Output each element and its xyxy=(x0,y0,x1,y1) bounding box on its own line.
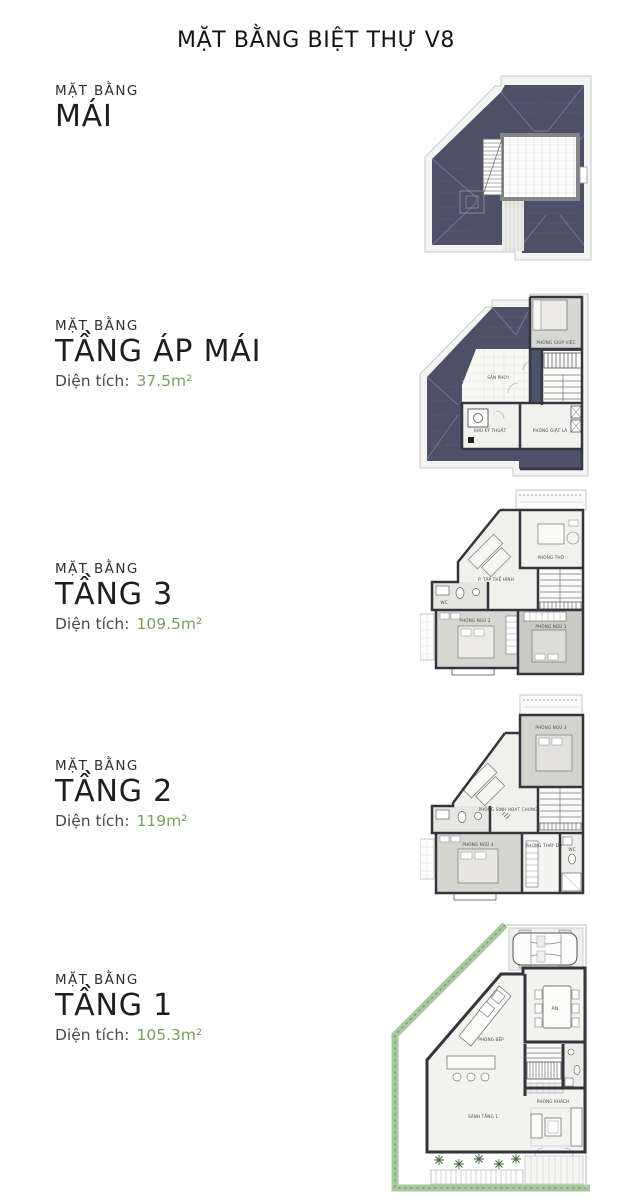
section-name: TẦNG 3 xyxy=(55,578,202,611)
balcony xyxy=(516,490,586,510)
section-name: TẦNG ÁP MÁI xyxy=(55,335,261,368)
section-roof: MẶT BẰNG MÁI xyxy=(55,83,139,133)
floor2-plan-drawing: PHÒNG NGỦ 3 PHÒNG SINH HOẠT CHUNG PHÒNG … xyxy=(420,691,632,901)
attic-plan-drawing: PHÒNG GIÚP VIỆC SÂN PHƠI KHU KỸ THUẬT PH… xyxy=(384,291,620,479)
room-label-hall: SẢNH TẦNG 1 xyxy=(468,1114,498,1119)
brochure-page: MẶT BẰNG BIỆT THỰ V8 MẶT BẰNG MÁI MẶT BẰ… xyxy=(0,0,632,1200)
room-label-wc: WC xyxy=(440,600,447,605)
room-label-bedroom4: PHÒNG NGỦ 4 xyxy=(462,842,493,847)
room-label-drying: SÂN PHƠI xyxy=(487,375,509,380)
room-label-kitchen: PHÒNG BẾP xyxy=(478,1036,504,1042)
room-label-bedroom1: PHÒNG NGỦ 1 xyxy=(535,624,566,629)
floor1-plan: ĂN PHÒNG BẾP SẢNH TẦNG 1 PHÒNG KHÁCH xyxy=(385,920,632,1198)
room-label-bedroom2: PHÒNG NGỦ 2 xyxy=(459,618,490,623)
section-label: MẶT BẰNG xyxy=(55,972,202,988)
section-area: Diện tích:119m² xyxy=(55,812,187,830)
room-label-maid: PHÒNG GIÚP VIỆC xyxy=(536,340,575,345)
plant-icons xyxy=(434,1154,521,1169)
roof-plan-drawing xyxy=(388,73,620,263)
section-name: MÁI xyxy=(55,100,139,133)
area-label: Diện tích: xyxy=(55,812,129,830)
section-area: Diện tích:109.5m² xyxy=(55,615,202,633)
section-label: MẶT BẰNG xyxy=(55,318,261,334)
roof-plan xyxy=(388,73,620,263)
room-label-dining: ĂN xyxy=(552,1005,559,1012)
section-area: Diện tích:37.5m² xyxy=(55,372,261,390)
room-label-common: PHÒNG SINH HOẠT CHUNG xyxy=(479,807,538,812)
section-label: MẶT BẰNG xyxy=(55,83,139,99)
section-attic: MẶT BẰNG TẦNG ÁP MÁI Diện tích:37.5m² xyxy=(55,318,261,390)
area-label: Diện tích: xyxy=(55,372,129,390)
porch xyxy=(525,1156,583,1184)
bed-icon xyxy=(458,849,498,883)
car-icon xyxy=(513,930,577,968)
room-label-worship: PHÒNG THỜ xyxy=(537,555,564,560)
deck-strip xyxy=(431,1170,523,1184)
area-value: 37.5m² xyxy=(136,372,192,390)
room-label-gym: P. TẬP THỂ HÌNH xyxy=(478,577,514,582)
balcony xyxy=(520,695,582,715)
page-title: MẶT BẰNG BIỆT THỰ V8 xyxy=(0,28,632,53)
room-label-wc: WC xyxy=(568,847,575,852)
room-label-technical: KHU KỸ THUẬT xyxy=(474,428,507,433)
section-name: TẦNG 1 xyxy=(55,989,202,1022)
room-label-living: PHÒNG KHÁCH xyxy=(537,1099,570,1104)
area-label: Diện tích: xyxy=(55,615,129,633)
bed-icon xyxy=(532,630,566,662)
area-value: 109.5m² xyxy=(136,615,202,633)
floor3-plan: PHÒNG THỜ P. TẬP THỂ HÌNH PHÒNG NGỦ 2 PH… xyxy=(420,482,632,688)
section-name: TẦNG 2 xyxy=(55,775,187,808)
area-label: Diện tích: xyxy=(55,1026,129,1044)
attic-plan: PHÒNG GIÚP VIỆC SÂN PHƠI KHU KỸ THUẬT PH… xyxy=(384,291,620,479)
bed-icon xyxy=(458,626,494,658)
floor1-plan-drawing: ĂN PHÒNG BẾP SẢNH TẦNG 1 PHÒNG KHÁCH xyxy=(385,920,632,1198)
room-label-dressing: PHÒNG THAY ĐỒ xyxy=(526,843,563,848)
section-label: MẶT BẰNG xyxy=(55,758,187,774)
floor3-plan-drawing: PHÒNG THỜ P. TẬP THỂ HÌNH PHÒNG NGỦ 2 PH… xyxy=(420,482,632,688)
section-floor3: MẶT BẰNG TẦNG 3 Diện tích:109.5m² xyxy=(55,561,202,633)
floor2-plan: PHÒNG NGỦ 3 PHÒNG SINH HOẠT CHUNG PHÒNG … xyxy=(420,691,632,901)
room-label-laundry: PHÒNG GIẶT LÀ xyxy=(533,428,568,433)
section-floor2: MẶT BẰNG TẦNG 2 Diện tích:119m² xyxy=(55,758,187,830)
area-value: 105.3m² xyxy=(136,1026,202,1044)
section-label: MẶT BẰNG xyxy=(55,561,202,577)
roof-terrace xyxy=(502,135,578,199)
wardrobe-icon xyxy=(506,616,517,654)
section-area: Diện tích:105.3m² xyxy=(55,1026,202,1044)
bed-icon xyxy=(536,735,572,771)
room-label-bedroom3: PHÒNG NGỦ 3 xyxy=(535,725,566,730)
area-value: 119m² xyxy=(136,812,187,830)
wardrobe-icon xyxy=(524,612,566,621)
bed-icon xyxy=(533,300,567,330)
section-floor1: MẶT BẰNG TẦNG 1 Diện tích:105.3m² xyxy=(55,972,202,1044)
